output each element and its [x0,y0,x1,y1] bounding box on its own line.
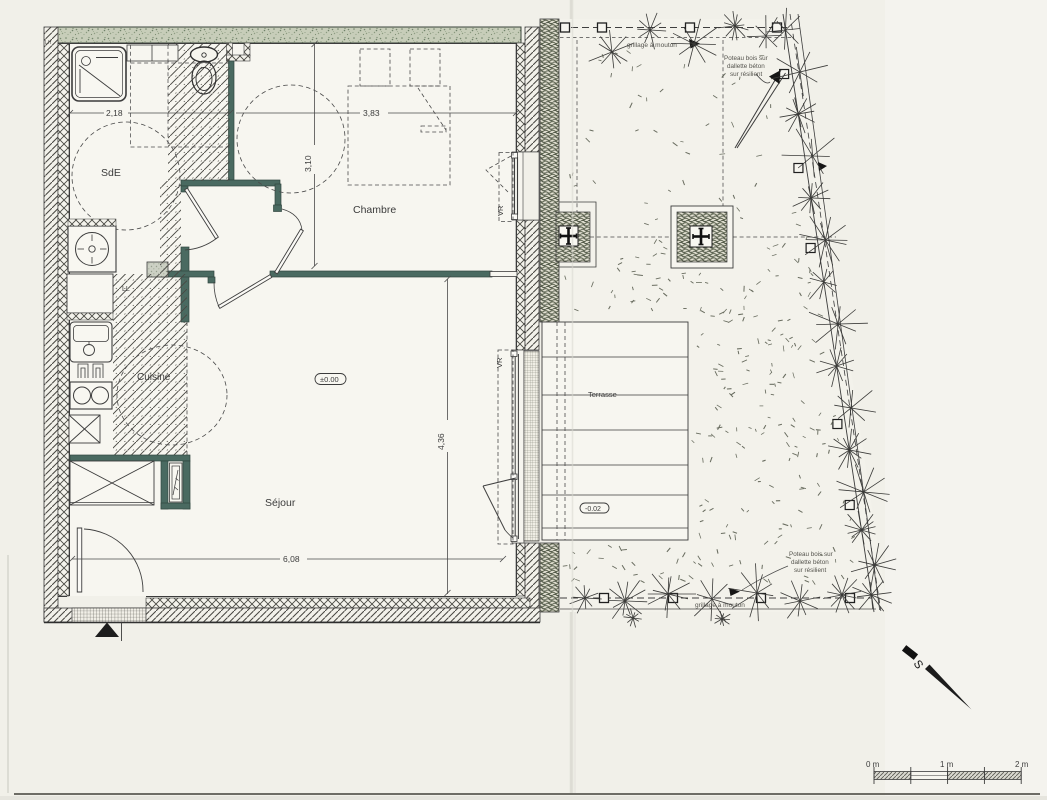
svg-text:sur résilient: sur résilient [794,567,826,574]
svg-text:sur résilient: sur résilient [730,71,762,78]
svg-text:Chambre: Chambre [353,204,396,216]
svg-text:-0.02: -0.02 [585,506,601,513]
svg-text:0 m: 0 m [866,760,880,769]
svg-text:dallette béton: dallette béton [791,559,829,566]
svg-text:±0.00: ±0.00 [320,375,339,384]
svg-text:Cuisine: Cuisine [137,372,171,383]
svg-text:dallette béton: dallette béton [727,63,765,70]
svg-text:VR: VR [495,357,504,368]
svg-text:3,10: 3,10 [303,155,313,172]
svg-text:VR: VR [496,205,505,216]
svg-text:1 m: 1 m [940,760,954,769]
svg-text:Séjour: Séjour [265,497,296,509]
svg-text:3,83: 3,83 [363,108,380,118]
svg-text:Poteau bois sur: Poteau bois sur [789,551,833,558]
svg-text:4,36: 4,36 [436,433,446,450]
svg-text:Terrasse: Terrasse [588,390,617,399]
svg-text:2,18: 2,18 [106,108,123,118]
svg-text:LL: LL [122,286,130,293]
svg-text:2 m: 2 m [1015,760,1029,769]
svg-text:LH: LH [45,40,52,46]
svg-text:6,08: 6,08 [283,554,300,564]
svg-text:SdE: SdE [101,167,121,179]
svg-text:Poteau bois sur: Poteau bois sur [724,55,768,62]
svg-text:grillage à mouton: grillage à mouton [627,42,677,49]
